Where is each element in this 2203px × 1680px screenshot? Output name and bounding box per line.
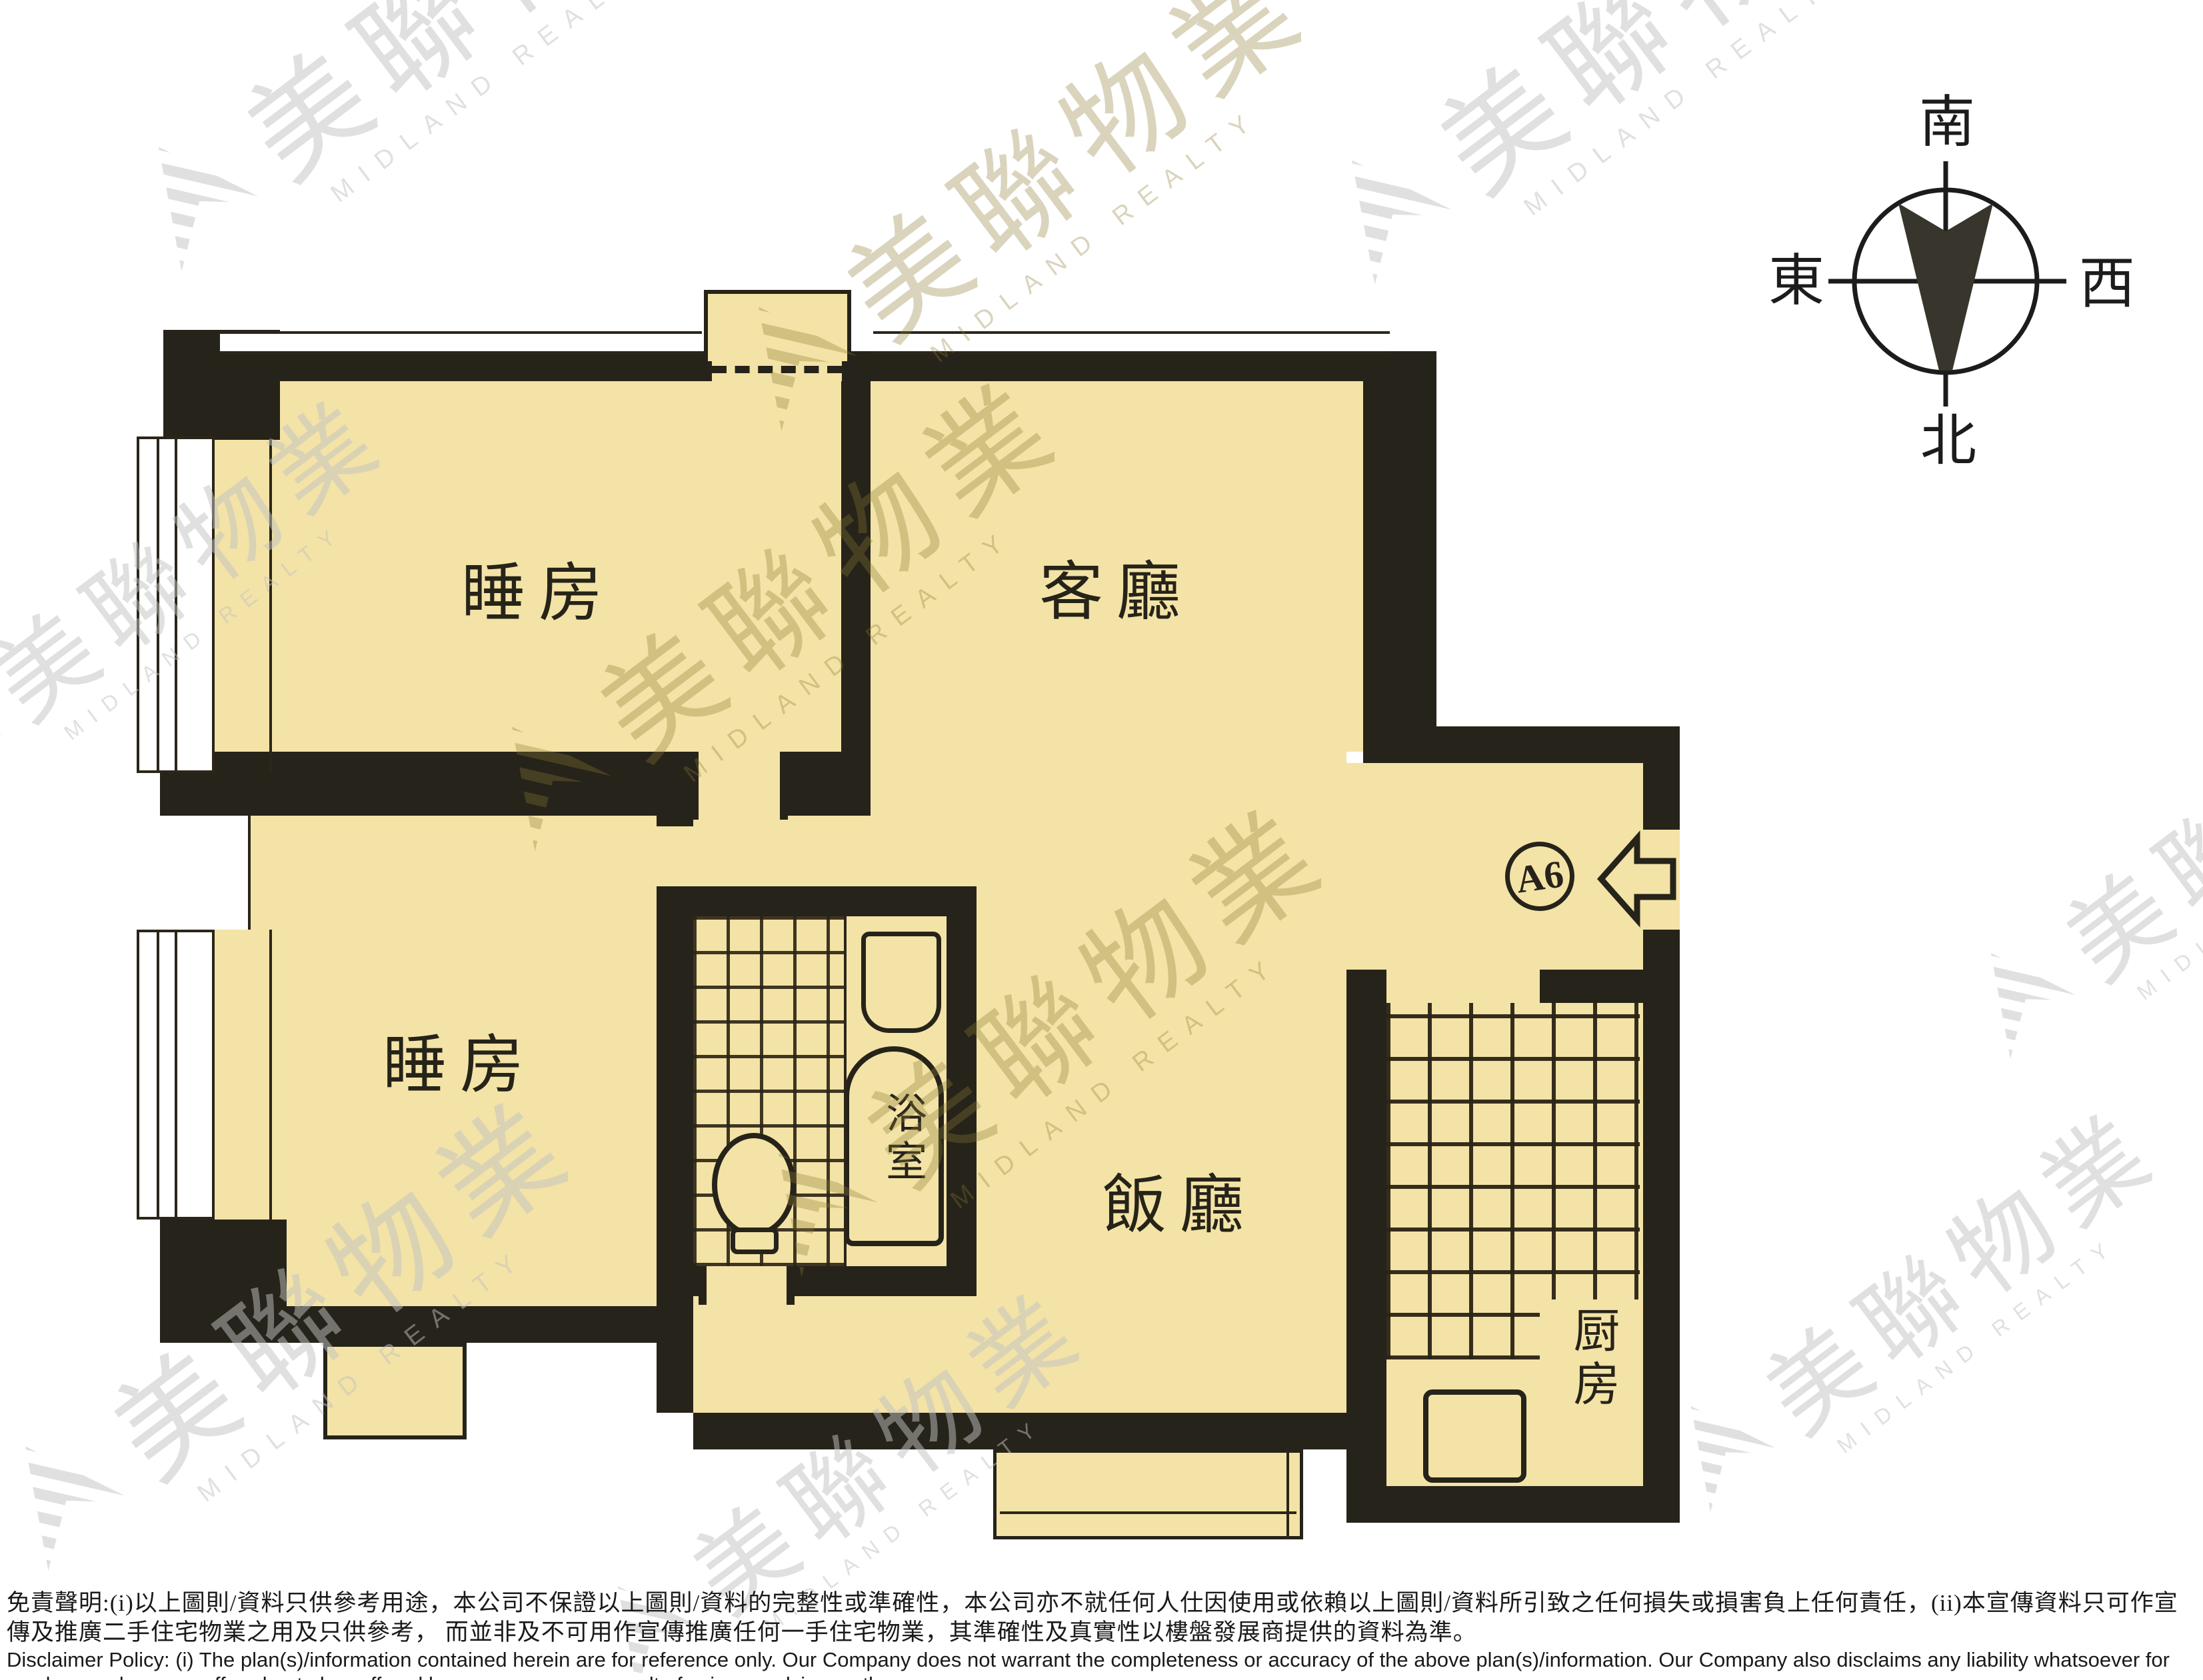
dining-room-label: 飯廳: [1047, 1153, 1313, 1246]
window-band-top-right: [873, 331, 1390, 354]
wall-living-right: [1363, 351, 1436, 746]
corridor-upper-floor: [693, 816, 888, 886]
bedroom-bottom-floor-strip: [215, 930, 273, 1220]
midland-logo-icon: [1306, 126, 1465, 285]
dashed-window-top: [712, 366, 842, 373]
wall-kitchen-bottom: [1346, 1486, 1653, 1523]
window-band-top-left: [220, 331, 702, 354]
wall-kitchen-top-stub: [1540, 970, 1653, 1003]
bathroom-divider-line: [844, 916, 847, 1266]
bath-door-tick-2: [787, 1266, 795, 1305]
dining-bay-right-line: [1286, 1449, 1289, 1539]
midland-logo-icon: [113, 113, 272, 271]
kitchen-appliance: [1423, 1389, 1526, 1483]
watermark-text-cn: 美聯物業: [1732, 1070, 2186, 1461]
wall-bedroom-divider: [841, 381, 871, 752]
living-room-label: 客廳: [983, 540, 1250, 632]
balcony-box-bottom-left: [323, 1343, 467, 1439]
watermark-text-en: MIDLAND REALTY: [326, 0, 752, 209]
compass-icon: [1826, 161, 2066, 407]
disclaimer-line-en-1: Disclaimer Policy: (i) The plan(s)/infor…: [7, 1647, 2200, 1680]
disclaimer-footer: 免責聲明:(i)以上圖則/資料只供參考用途，本公司不保證以上圖則/資料的完整性或…: [7, 1589, 2200, 1680]
disclaimer-line-zh: 免責聲明:(i)以上圖則/資料只供參考用途，本公司不保證以上圖則/資料的完整性或…: [7, 1589, 2200, 1647]
wall-right-upper: [1643, 763, 1680, 830]
midland-watermark: 美聯物業 MIDLAND REALTY: [1638, 1070, 2195, 1544]
toilet-base: [731, 1228, 779, 1254]
compass-west-label: 西: [2070, 248, 2144, 321]
compass-south-label: 南: [1910, 87, 1984, 160]
door-frame-tick-1: [691, 752, 699, 820]
bathroom-label: 浴室: [872, 1092, 932, 1212]
ac-platform-box: [704, 290, 851, 365]
watermark-text-en: MIDLAND REALTY: [2133, 724, 2203, 1006]
outside-notch-top-right: [1436, 280, 1680, 726]
bay2-inner-edge: [269, 930, 272, 1220]
bedroom-top-door-gap: [699, 752, 780, 816]
compass-north-label: 北: [1912, 405, 1985, 478]
wall-hall-top: [1363, 726, 1680, 763]
dining-bay-window: [993, 1449, 1303, 1539]
wall-bathroom-right: [947, 886, 977, 1296]
bedroom-top-floor-strip: [215, 433, 273, 776]
bedroom-bottom-label: 睡房: [327, 1013, 593, 1106]
notch-edge-line: [248, 816, 251, 930]
bathroom-door-gap: [707, 1266, 787, 1296]
bay2-glass-line-2: [175, 930, 177, 1220]
watermark-text-cn: 美聯物業: [2032, 616, 2203, 1008]
entrance-arrow-icon: [1597, 830, 1680, 928]
wall-corner-bottom-left: [160, 1220, 287, 1343]
dashed-window-dining: [1133, 1426, 1303, 1433]
dining-bay-inner-line: [1000, 1511, 1296, 1514]
midland-logo-icon: [1952, 924, 2087, 1058]
midland-watermark: 美聯物業 MIDLAND REALTY: [1938, 616, 2203, 1091]
wall-bathroom-top: [657, 886, 977, 916]
corridor-lower-floor: [693, 1296, 888, 1413]
door-frame-tick-2: [780, 752, 788, 820]
hall-dining-link-floor: [1346, 763, 1436, 970]
toilet: [712, 1133, 796, 1237]
bay1-inner-edge: [269, 436, 272, 773]
midland-logo-icon: [0, 664, 14, 798]
bathroom-sink: [861, 932, 941, 1033]
kitchen-label: 厨房: [1558, 1306, 1626, 1439]
watermark-text-en: MIDLAND REALTY: [1833, 1178, 2195, 1459]
bay1-glass-line-1: [157, 436, 159, 773]
bay2-glass-line-1: [157, 930, 159, 1220]
dashed-window-bedroom-bottom: [313, 1318, 460, 1325]
watermark-text-en: MIDLAND REALTY: [926, 38, 1352, 369]
compass-east-label: 東: [1760, 245, 1833, 319]
wall-right-lower: [1643, 930, 1680, 1523]
bedroom-top-label: 睡房: [405, 541, 672, 634]
outside-notch-mid-left: [160, 816, 248, 930]
midland-watermark: 美聯物業 MIDLAND REALTY: [97, 0, 752, 309]
floor-plan-page: 睡房 客廳 睡房 飯廳 浴室 厨房 A6 南 北 東 西 美聯物業 MIDLAN…: [0, 0, 2203, 1680]
bay1-glass-line-2: [175, 436, 177, 773]
watermark-text-cn: 美聯物業: [207, 0, 741, 211]
midland-logo-icon: [0, 1412, 139, 1571]
wall-kitchen-left: [1346, 970, 1386, 1523]
watermark-text-cn: 美聯物業: [807, 0, 1340, 371]
bath-door-tick-1: [699, 1266, 707, 1305]
